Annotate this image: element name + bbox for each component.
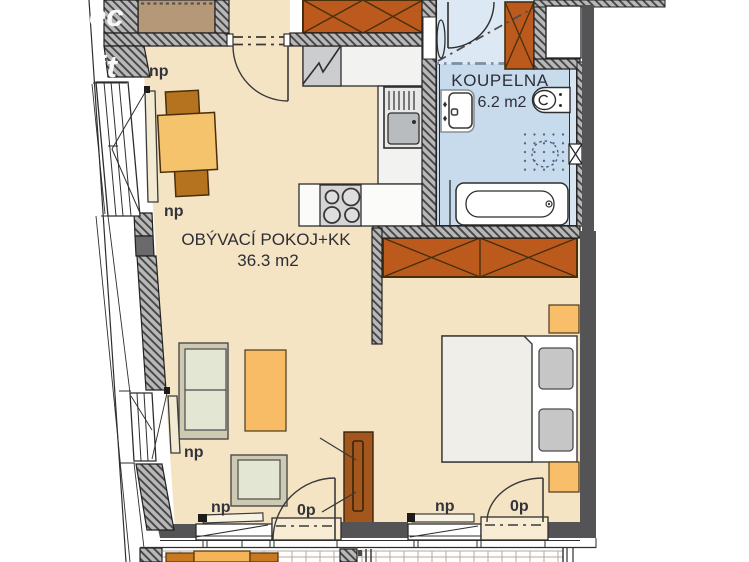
- svg-text:0p: 0p: [510, 498, 529, 515]
- svg-text:np: np: [149, 63, 169, 80]
- svg-text:ec: ec: [89, 0, 123, 33]
- svg-text:np: np: [184, 444, 204, 461]
- svg-text:np: np: [435, 498, 455, 515]
- svg-text:OBÝVACÍ POKOJ+KK: OBÝVACÍ POKOJ+KK: [181, 230, 351, 249]
- svg-text:36.3 m2: 36.3 m2: [237, 251, 298, 270]
- svg-text:it: it: [98, 49, 119, 84]
- svg-text:np: np: [211, 499, 231, 516]
- svg-text:KOUPELNA: KOUPELNA: [451, 71, 548, 90]
- svg-text:np: np: [164, 203, 184, 220]
- svg-text:0p: 0p: [297, 502, 316, 519]
- svg-text:6.2 m2: 6.2 m2: [478, 94, 527, 111]
